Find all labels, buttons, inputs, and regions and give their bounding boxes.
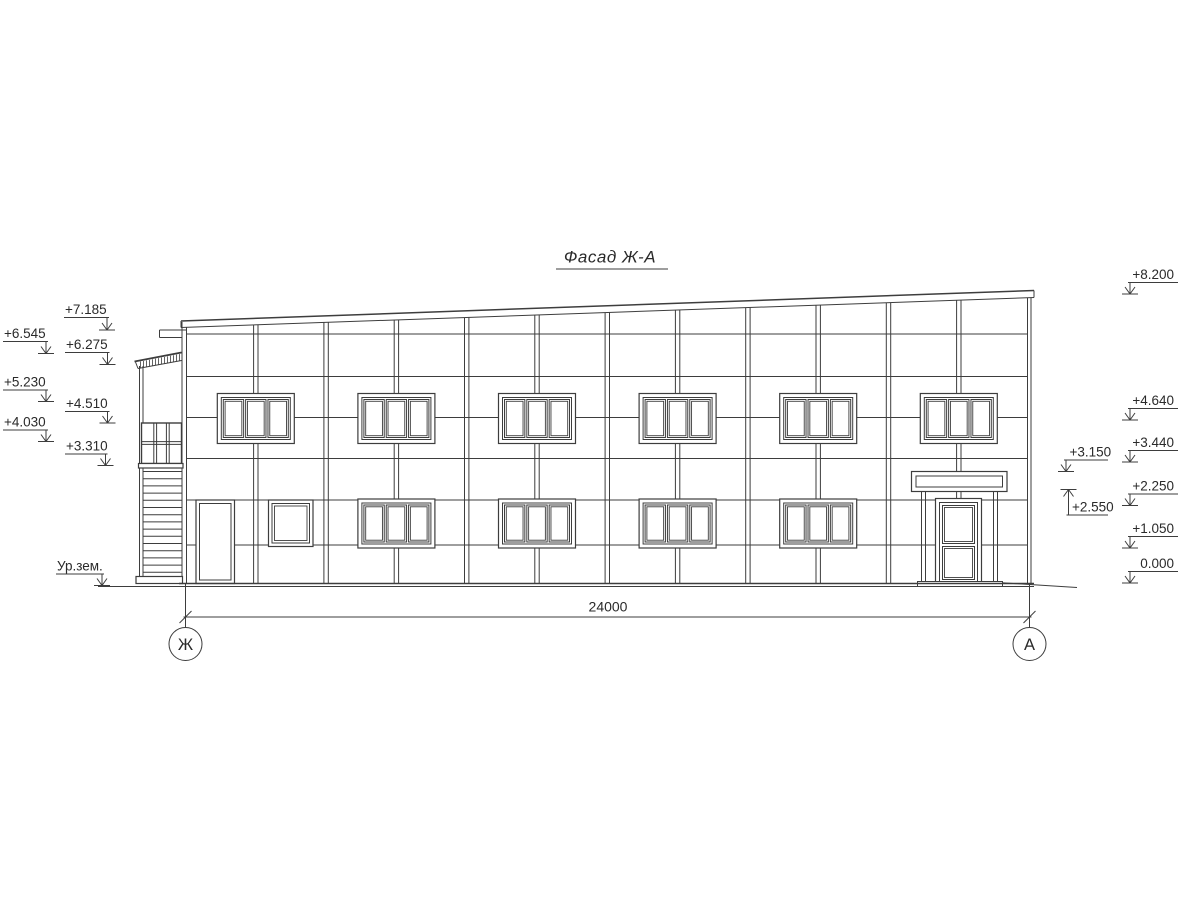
drawing-title: Фасад Ж-А — [564, 248, 656, 267]
elevation-mark-label: +4.640 — [1132, 393, 1174, 408]
elevation-mark: +7.185 — [64, 302, 115, 330]
elevation-mark-label: +3.440 — [1132, 435, 1174, 450]
window — [639, 499, 716, 548]
elevation-mark-label: +1.050 — [1132, 521, 1174, 536]
window — [358, 394, 435, 444]
elevation-mark: 0.000 — [1122, 556, 1178, 583]
elevation-mark-label: +2.250 — [1132, 479, 1174, 494]
window — [499, 499, 576, 548]
elevation-mark: +3.150 — [1058, 445, 1111, 472]
elevation-mark: +5.230 — [3, 375, 54, 402]
small-window — [269, 500, 314, 547]
elevation-mark: Ур.зем. — [56, 559, 110, 586]
building-facade — [98, 291, 1077, 588]
elevation-mark-label: +5.230 — [4, 375, 46, 390]
elevation-mark-label: +8.200 — [1132, 267, 1174, 282]
window — [499, 394, 576, 444]
window — [358, 499, 435, 548]
axis-label-right: А — [1024, 636, 1035, 654]
facade-elevation-drawing: Фасад Ж-А +7.185+6.545+6.275+5.230+4.510… — [0, 0, 1200, 900]
elevation-mark: +3.440 — [1122, 435, 1178, 462]
elevation-mark-label: +2.550 — [1072, 500, 1114, 515]
elevation-mark: +6.545 — [3, 326, 54, 354]
elevation-mark-label: +3.150 — [1070, 445, 1112, 460]
window — [780, 394, 857, 444]
elevation-mark-label: +4.030 — [4, 415, 46, 430]
elevation-mark-label: +6.545 — [4, 326, 46, 341]
elevation-mark-label: +4.510 — [66, 396, 108, 411]
elevation-mark-label: +6.275 — [66, 337, 108, 352]
window — [217, 394, 294, 444]
window — [920, 394, 997, 444]
elevation-mark: +8.200 — [1122, 267, 1178, 294]
axis-label-left: Ж — [178, 636, 194, 654]
entrance — [912, 472, 1008, 587]
elevation-mark: +4.510 — [65, 396, 116, 423]
elevation-mark-label: +3.310 — [66, 439, 108, 454]
elevation-mark: +4.640 — [1122, 393, 1178, 420]
elevation-mark: +2.550 — [1061, 490, 1114, 516]
elevation-mark: +2.250 — [1122, 479, 1178, 506]
elevation-mark-label: Ур.зем. — [57, 559, 103, 574]
elevation-mark: +4.030 — [3, 415, 54, 442]
elevation-mark: +1.050 — [1122, 521, 1178, 548]
elevation-mark-label: +7.185 — [65, 302, 107, 317]
mono-pitch-roof — [181, 291, 1034, 328]
stair-tower — [135, 353, 184, 584]
window — [639, 394, 716, 444]
window — [780, 499, 857, 548]
elevation-mark: +3.310 — [65, 439, 114, 466]
elevation-mark: +6.275 — [65, 337, 116, 365]
dimension-and-axes: 24000 Ж А — [169, 584, 1046, 661]
side-door — [196, 500, 235, 584]
elevation-mark-label: 0.000 — [1140, 556, 1174, 571]
drawing-sheet: Фасад Ж-А +7.185+6.545+6.275+5.230+4.510… — [0, 0, 1200, 900]
dimension-value: 24000 — [589, 599, 628, 615]
